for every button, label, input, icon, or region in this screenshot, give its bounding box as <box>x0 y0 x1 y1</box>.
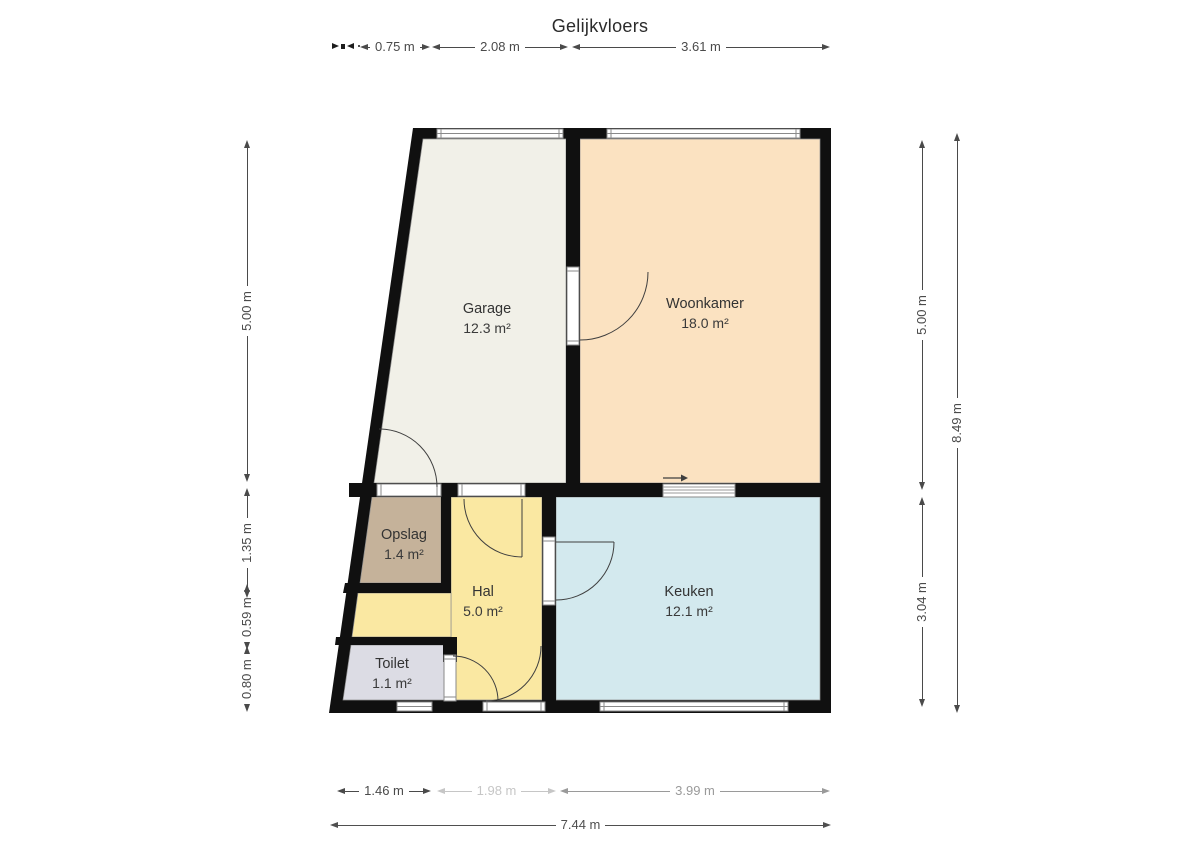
room-name: Keuken <box>619 583 759 602</box>
dim-top-1: 0.75 m <box>360 39 428 55</box>
room-label-keuken: Keuken 12.1 m² <box>619 583 759 620</box>
window-keuken-bottom <box>600 702 788 711</box>
dim-left-1: 5.00 m <box>239 140 255 482</box>
room-label-opslag: Opslag 1.4 m² <box>334 526 474 563</box>
dim-bottom-3: 3.99 m <box>560 783 830 799</box>
floorplan-drawing <box>0 0 1200 849</box>
room-area: 12.1 m² <box>619 602 759 620</box>
room-label-hal: Hal 5.0 m² <box>413 583 553 620</box>
room-area: 12.3 m² <box>417 319 557 337</box>
room-area: 1.1 m² <box>322 674 462 692</box>
dim-right-total: 8.49 m <box>949 133 965 713</box>
room-area: 1.4 m² <box>334 545 474 563</box>
passage-woonkamer-keuken <box>663 484 735 497</box>
dim-top-3: 3.61 m <box>572 39 830 55</box>
dim-right-inner-1: 5.00 m <box>914 140 930 490</box>
dim-left-3: 0.59 m <box>239 600 255 650</box>
room-name: Hal <box>413 583 553 602</box>
door-frame-front-entrance <box>483 702 545 711</box>
dim-bottom-total: 7.44 m <box>330 817 831 833</box>
room-name: Opslag <box>334 526 474 545</box>
room-label-garage: Garage 12.3 m² <box>417 300 557 337</box>
door-frame-garage-woonkamer <box>567 267 579 345</box>
room-area: 5.0 m² <box>413 602 553 620</box>
room-label-woonkamer: Woonkamer 18.0 m² <box>635 295 775 332</box>
mini-dimension-marks <box>332 43 360 49</box>
door-frame-garage-opslag <box>377 484 441 496</box>
floorplan-page: Gelijkvloers <box>0 0 1200 849</box>
window-woonkamer-top <box>607 129 800 138</box>
room-name: Garage <box>417 300 557 319</box>
window-toilet-bottom <box>397 702 432 711</box>
dim-bottom-2: 1.98 m <box>437 783 556 799</box>
room-name: Woonkamer <box>635 295 775 314</box>
wall-toilet-top <box>335 637 457 645</box>
room-area: 18.0 m² <box>635 314 775 332</box>
dim-top-2: 2.08 m <box>432 39 568 55</box>
dim-left-2: 1.35 m <box>239 488 255 598</box>
dim-bottom-1: 1.46 m <box>337 783 431 799</box>
dim-right-inner-2: 3.04 m <box>914 497 930 707</box>
door-frame-garage-hal <box>458 484 525 496</box>
window-garage-top <box>437 129 563 138</box>
room-label-toilet: Toilet 1.1 m² <box>322 655 462 692</box>
room-name: Toilet <box>322 655 462 674</box>
dim-left-4: 0.80 m <box>239 653 255 712</box>
